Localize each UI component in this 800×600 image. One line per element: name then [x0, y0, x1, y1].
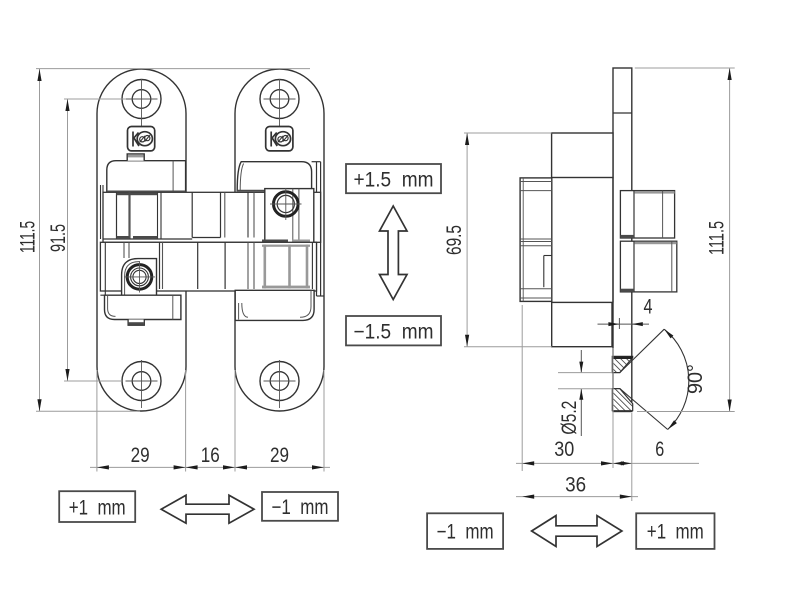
svg-text:29: 29	[131, 444, 150, 467]
svg-text:111.5: 111.5	[17, 221, 40, 253]
svg-text:30: 30	[554, 438, 574, 461]
svg-text:+1.5 mm: +1.5 mm	[354, 169, 434, 192]
svg-text:36: 36	[565, 474, 586, 497]
svg-text:111.5: 111.5	[706, 221, 729, 255]
svg-text:+1 mm: +1 mm	[69, 497, 126, 520]
svg-text:−1 mm: −1 mm	[437, 521, 494, 544]
svg-text:−1 mm: −1 mm	[272, 496, 329, 519]
svg-text:16: 16	[201, 444, 220, 467]
svg-text:−1.5 mm: −1.5 mm	[354, 321, 434, 344]
svg-text:69.5: 69.5	[443, 225, 466, 255]
svg-text:29: 29	[270, 444, 289, 467]
svg-text:Ø5.2: Ø5.2	[558, 401, 581, 435]
svg-text:90°: 90°	[684, 364, 707, 394]
svg-text:6: 6	[655, 438, 664, 461]
svg-text:+1 mm: +1 mm	[647, 521, 704, 544]
svg-text:91.5: 91.5	[47, 224, 70, 252]
svg-text:4: 4	[644, 296, 653, 319]
